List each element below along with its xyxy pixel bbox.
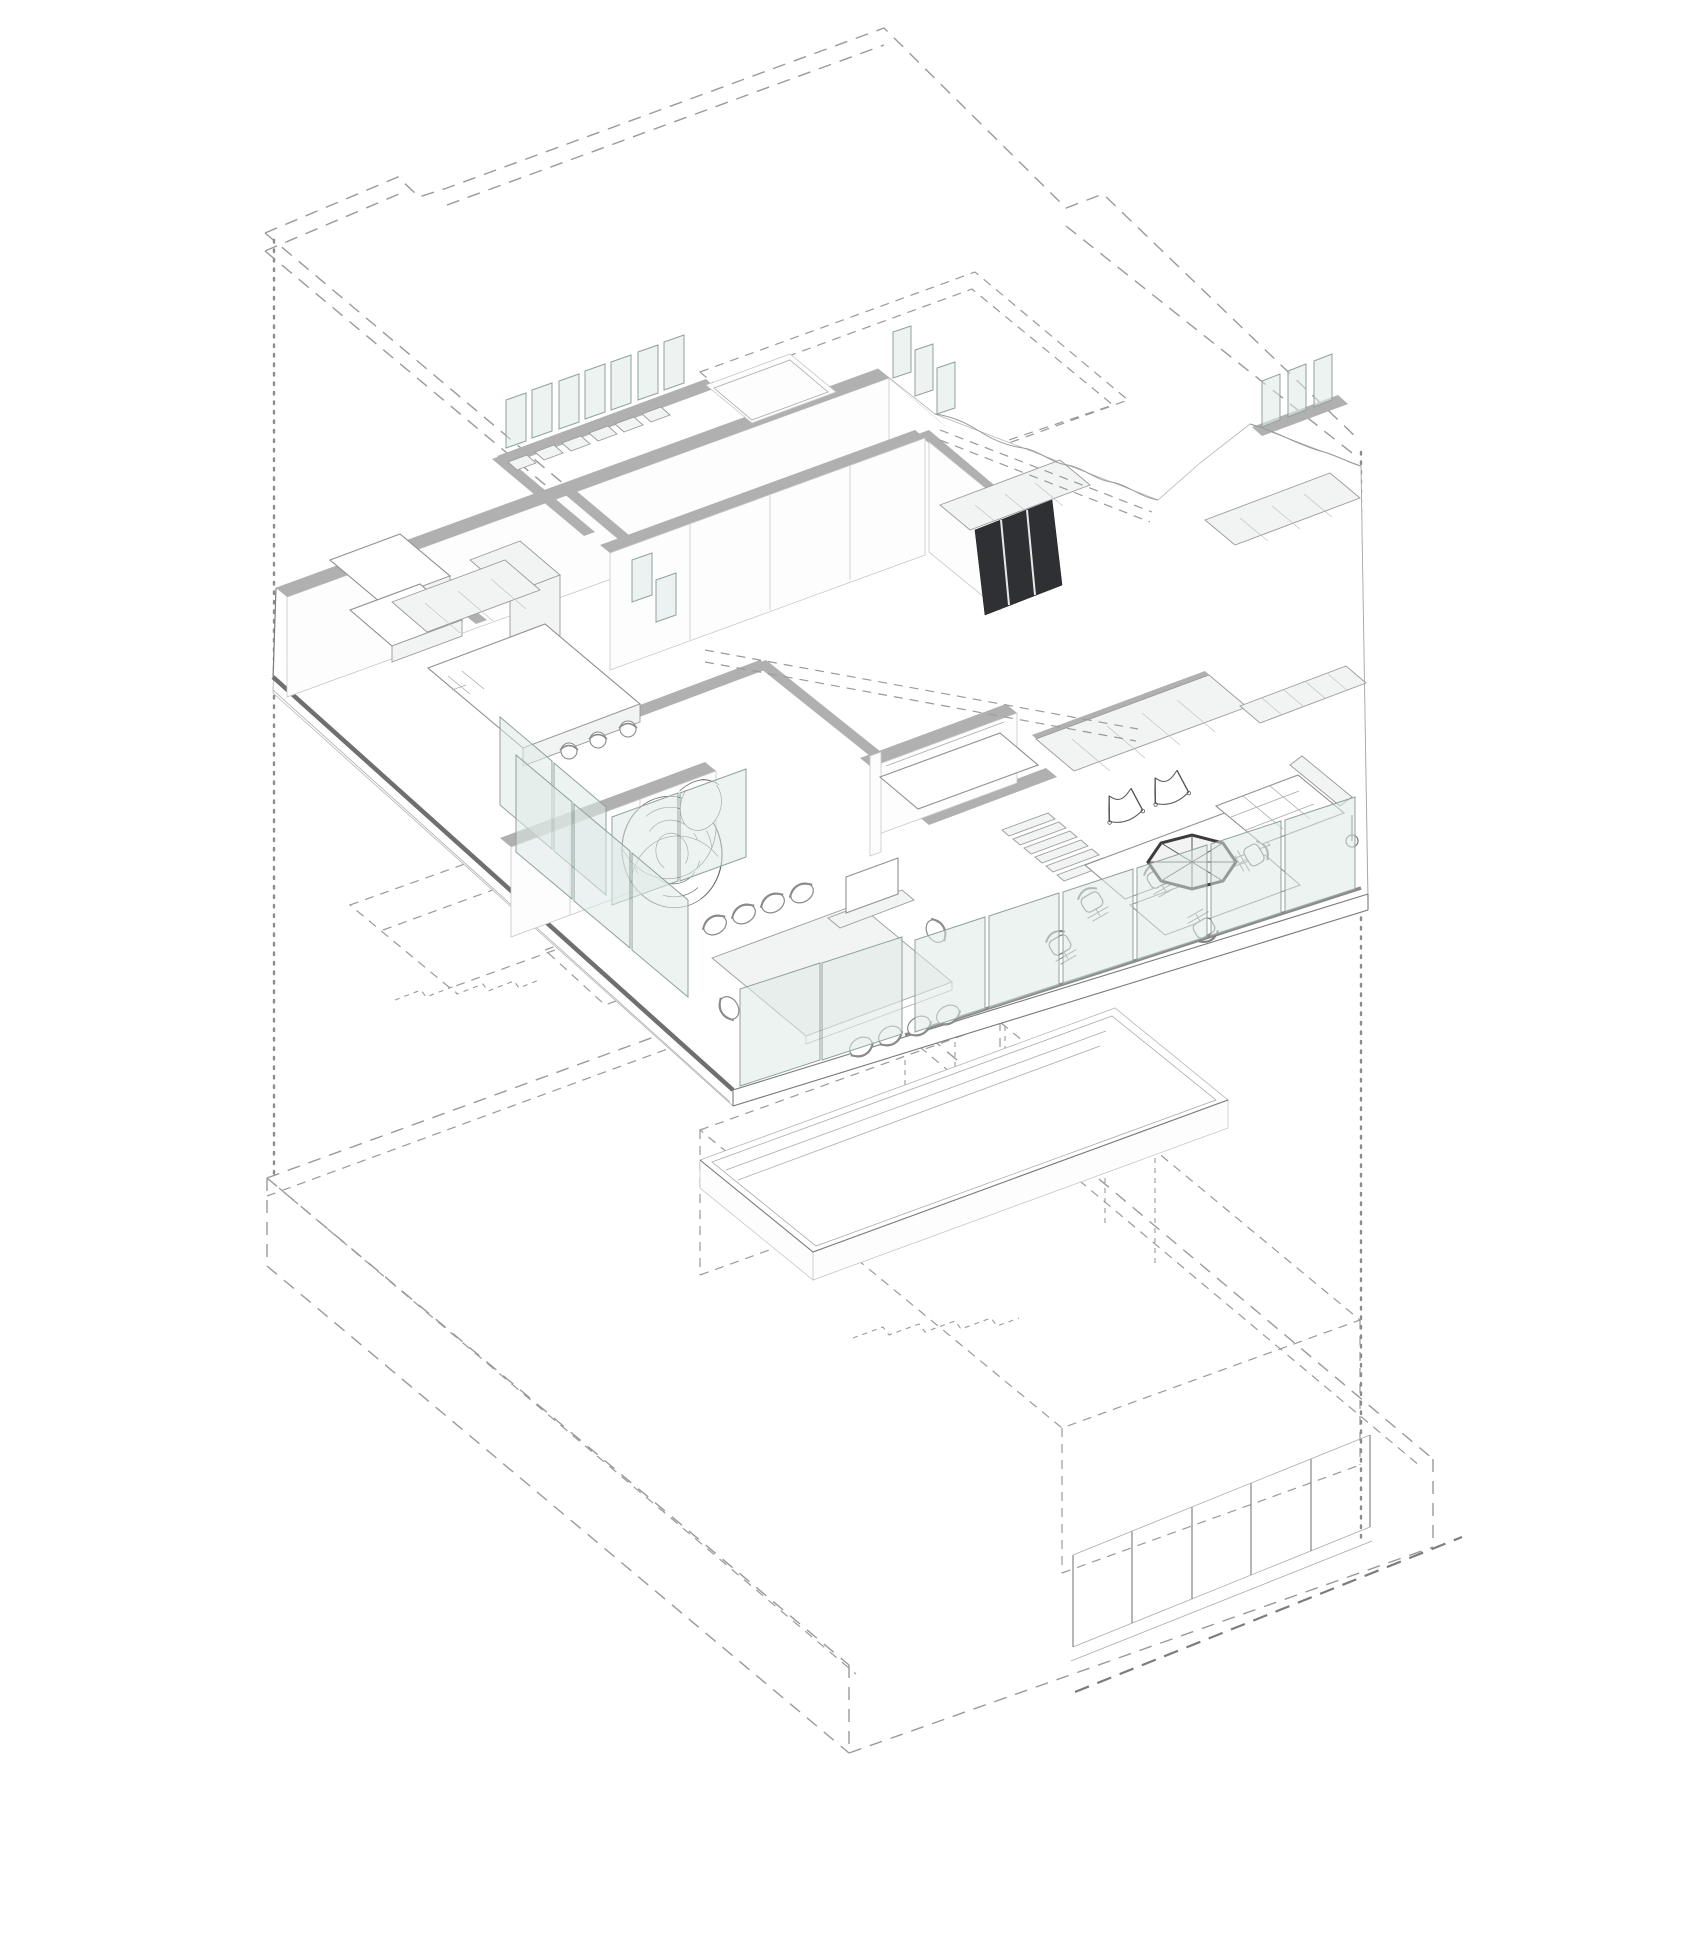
glass-fin [585, 364, 605, 419]
glass-fin [1314, 354, 1332, 407]
glass-fin [1288, 364, 1306, 417]
glass-fin [893, 326, 911, 378]
glass-fin [1262, 374, 1280, 427]
glass-fin [559, 374, 579, 429]
glass-fin [632, 553, 652, 602]
glazing-rail-lines [1071, 1527, 1372, 1661]
glazing-head-rail [1073, 1435, 1370, 1555]
lower-volume-double-lines [267, 985, 1420, 1674]
lower-stair-dashed-right [853, 1318, 1019, 1338]
glass-fin [506, 393, 526, 448]
glass-fin [656, 573, 676, 622]
bar-stool [589, 732, 607, 748]
axonometric-drawing-canvas [0, 0, 1698, 1942]
glass-fin [915, 344, 933, 396]
floor-plan-axonometric [0, 0, 1698, 1942]
glass-fin [638, 345, 658, 400]
glass-fin [664, 335, 684, 390]
glass-fin [611, 355, 631, 410]
bar-stool [619, 721, 637, 737]
glass-fin [937, 362, 955, 414]
lower-slab-heavy-dash [1075, 1537, 1462, 1692]
lower-volume-top-edges [267, 967, 1433, 1665]
lower-stair-dashed-left [395, 980, 539, 1000]
main-floor [273, 326, 1368, 1106]
glass-fin [532, 383, 552, 438]
bar-stool [560, 743, 578, 759]
glazing-mullions [1073, 1435, 1370, 1647]
face-quiet-room-east [870, 752, 881, 856]
